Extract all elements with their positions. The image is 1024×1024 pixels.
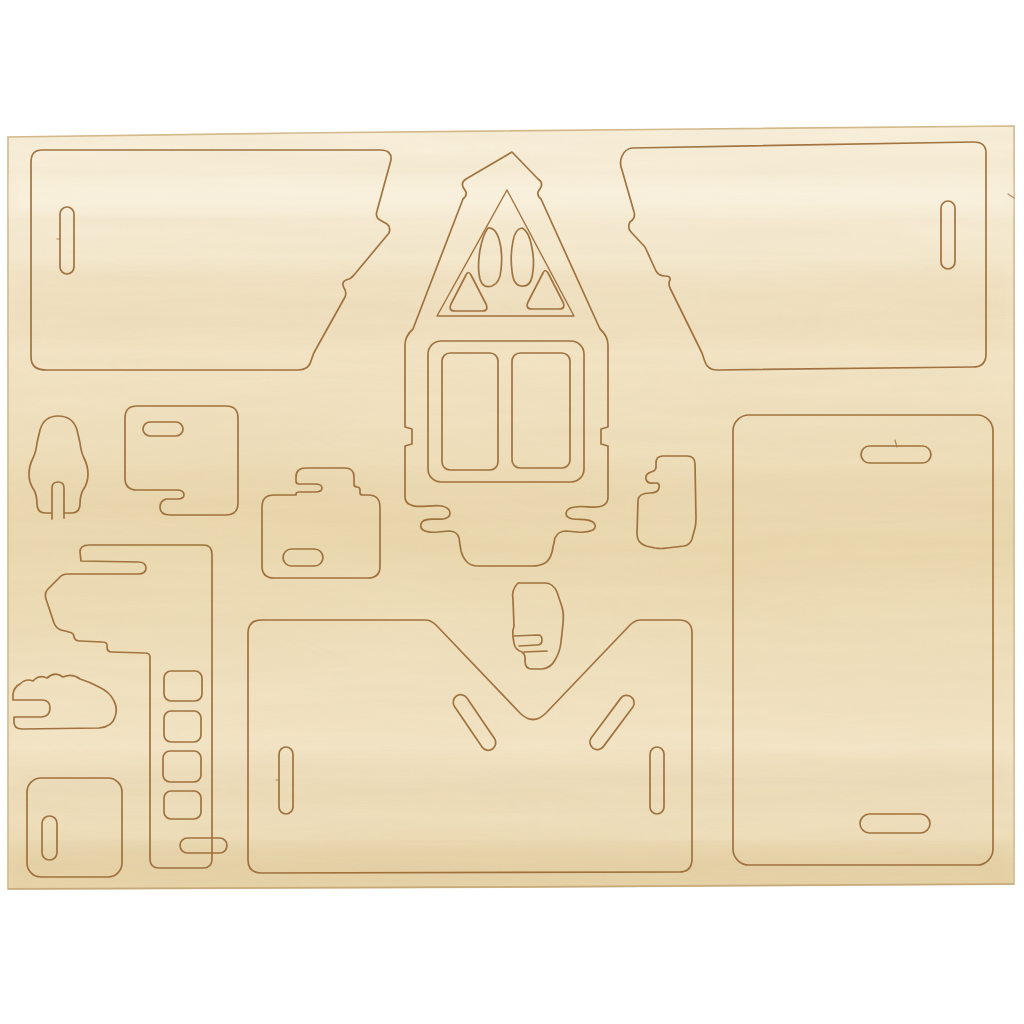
wood-texture [8, 126, 1014, 889]
shade-band-upper [8, 268, 1014, 342]
shade-band-bottom-edge [8, 845, 1014, 889]
shade-band-middle [8, 470, 1014, 518]
light-band-top [8, 178, 1014, 214]
product-photo [0, 0, 1024, 1024]
plywood-sheet [8, 126, 1014, 889]
plywood-kit-photo [0, 0, 1024, 1024]
shade-band-lower [8, 755, 1014, 807]
